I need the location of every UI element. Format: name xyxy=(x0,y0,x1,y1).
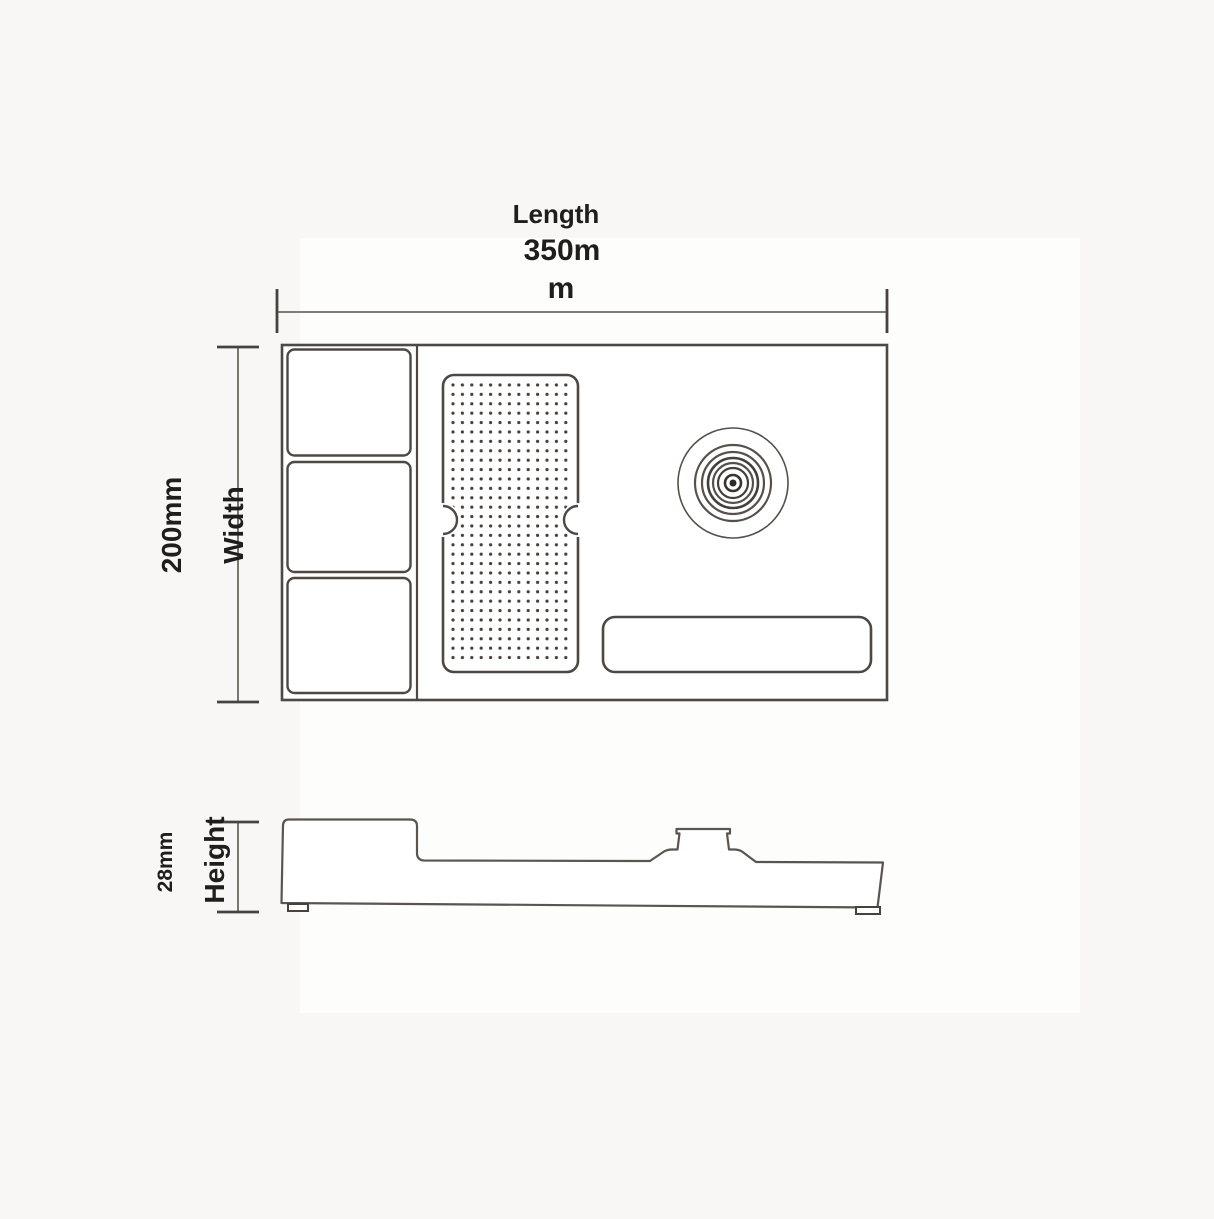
perforated-panel xyxy=(426,375,595,672)
compartment-2 xyxy=(288,462,411,572)
compartment-3 xyxy=(288,578,411,693)
length-value-line1: 350m xyxy=(524,234,601,267)
knob-center-dot xyxy=(730,480,737,487)
height-value: 28mm xyxy=(154,832,177,893)
right-foot xyxy=(856,907,880,914)
perforation-dots xyxy=(450,382,571,665)
product-top-view xyxy=(282,345,887,700)
width-value: 200mm xyxy=(156,477,187,574)
knob-concentric-circles xyxy=(678,428,788,538)
height-label: Height xyxy=(199,816,230,903)
pen-tray xyxy=(603,617,871,672)
technical-drawing-page: Length 350m m 200mm Width xyxy=(0,0,1214,1214)
left-foot xyxy=(288,904,308,911)
length-value-line2: m xyxy=(548,272,575,305)
compartment-1 xyxy=(288,350,411,456)
width-label: Width xyxy=(218,486,249,564)
length-label: Length xyxy=(513,199,600,229)
technical-drawing: Length 350m m 200mm Width xyxy=(0,0,1214,1214)
storage-compartments xyxy=(288,350,411,694)
